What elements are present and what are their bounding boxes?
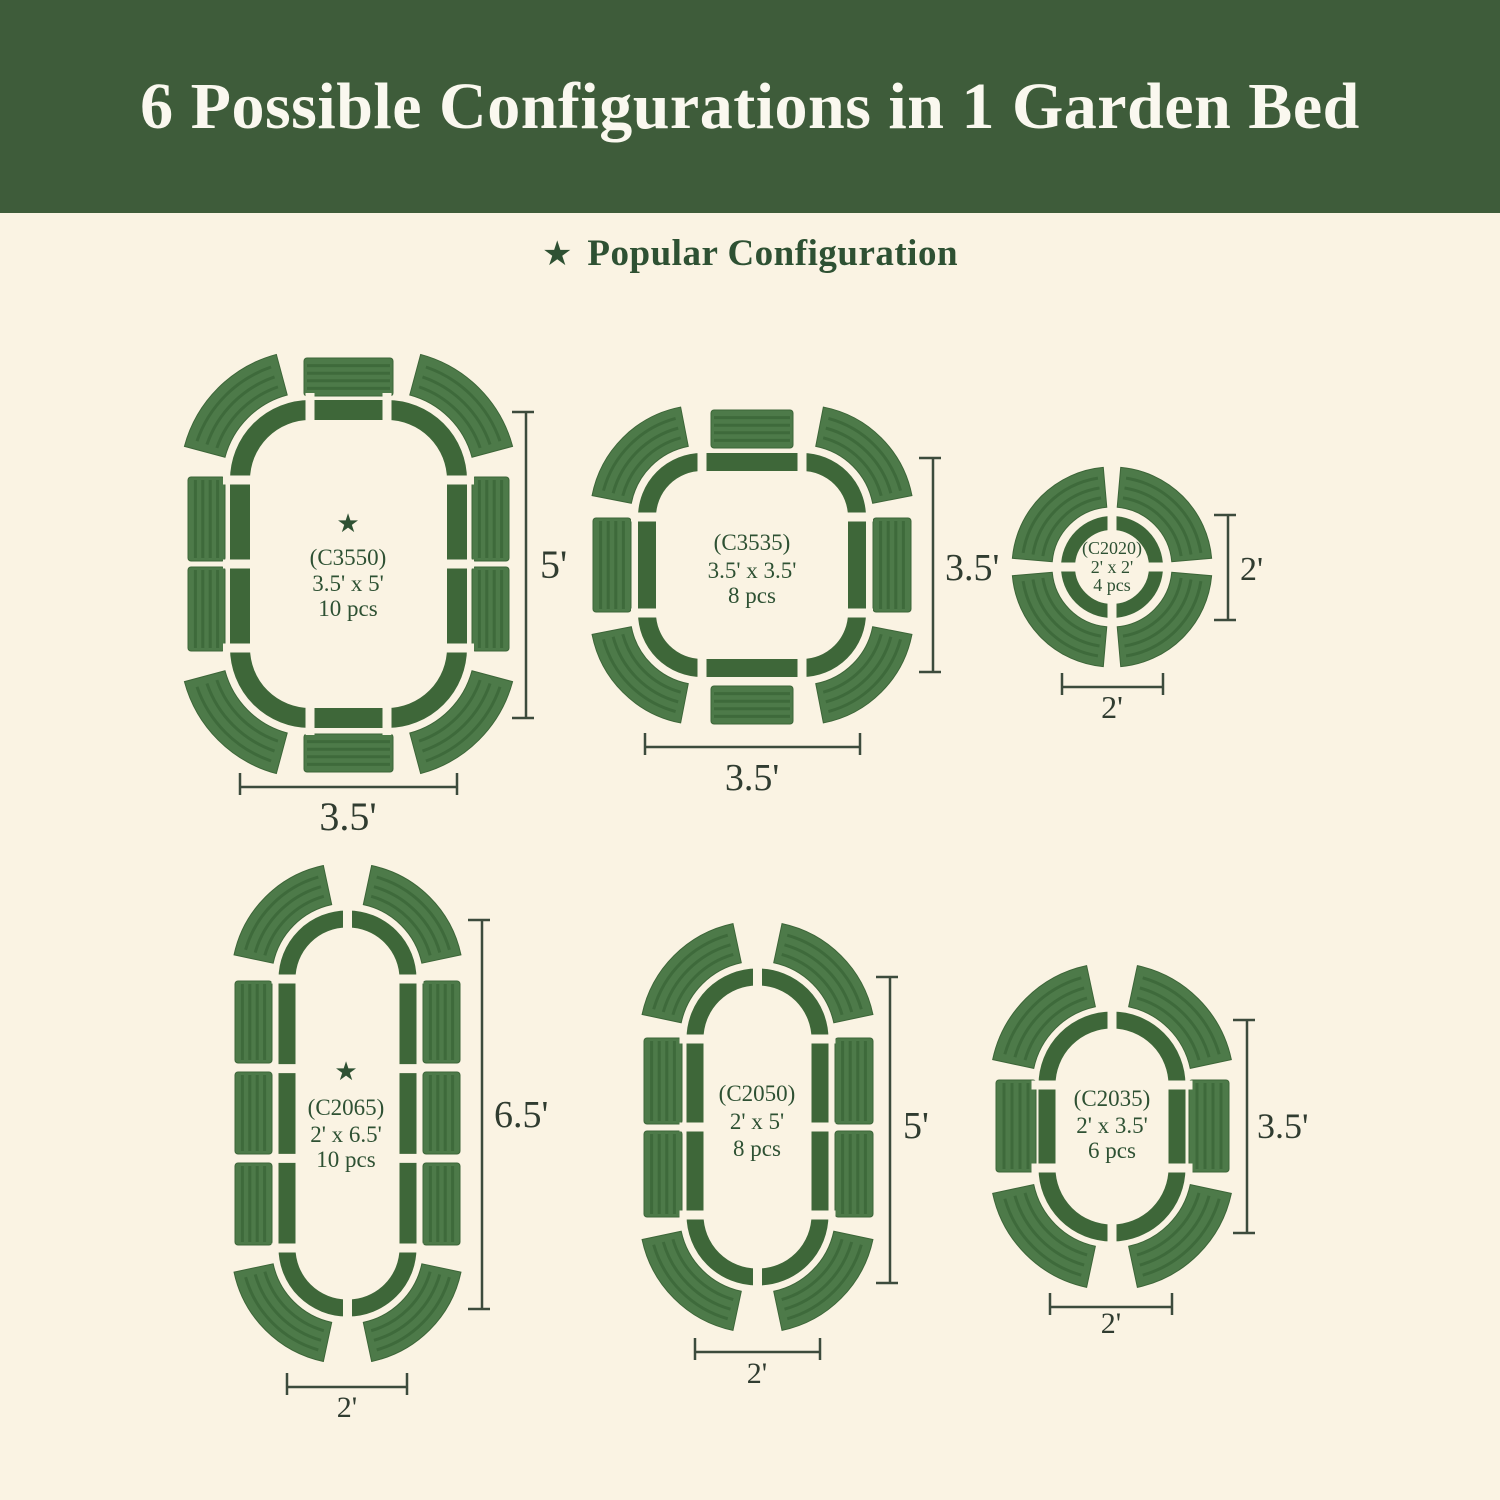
- curved-bed-panel: [993, 1185, 1096, 1288]
- curved-bed-panel: [774, 1231, 873, 1330]
- width-dim-label: 2': [1101, 689, 1123, 725]
- garden-bed-figure: 2'2'(C2020)2' x 2'4 pcs: [990, 450, 1300, 760]
- curved-bed-panel: [410, 671, 513, 774]
- curved-bed-panel: [184, 671, 287, 774]
- config-piece-count: 10 pcs: [318, 596, 377, 621]
- config-diagram-c3535: 3.5'3.5'(C3535)3.5' x 3.5'8 pcs: [590, 400, 1030, 840]
- config-size: 2' x 2': [1091, 557, 1134, 577]
- header-banner: 6 Possible Configurations in 1 Garden Be…: [0, 0, 1500, 213]
- garden-bed-figure: 5'2'(C2050)2' x 5'8 pcs: [630, 920, 960, 1420]
- config-size: 3.5' x 3.5': [708, 558, 797, 583]
- dimension-annotations: 5'3.5': [240, 412, 567, 839]
- height-dim-label: 3.5': [1257, 1106, 1309, 1146]
- straight-bed-panel: [235, 1163, 272, 1245]
- dimension-annotations: 3.5'3.5': [645, 458, 999, 799]
- straight-bed-panel: [1189, 1080, 1229, 1172]
- config-size: 2' x 5': [730, 1109, 784, 1134]
- config-size: 2' x 3.5': [1076, 1113, 1148, 1138]
- popular-star-icon: ★: [336, 509, 359, 539]
- straight-bed-panel: [188, 477, 225, 561]
- config-label: (C2050)2' x 5'8 pcs: [719, 1081, 796, 1161]
- config-piece-count: 8 pcs: [733, 1136, 781, 1161]
- config-diagram-c2035: 3.5'2'(C2035)2' x 3.5'6 pcs: [980, 960, 1340, 1380]
- straight-bed-panel: [711, 686, 793, 724]
- config-code: (C2050): [719, 1081, 796, 1106]
- curved-bed-panel: [1117, 572, 1211, 666]
- width-dim-label: 3.5': [319, 794, 376, 839]
- config-label: ★(C2065)2' x 6.5'10 pcs: [308, 1057, 385, 1172]
- straight-bed-panel: [835, 1038, 873, 1124]
- config-diagram-c3550: 5'3.5'★(C3550)3.5' x 5'10 pcs: [170, 350, 620, 850]
- curved-bed-panel: [363, 866, 461, 964]
- config-size: 3.5' x 5': [312, 571, 384, 596]
- garden-bed-figure: 3.5'2'(C2035)2' x 3.5'6 pcs: [980, 960, 1340, 1380]
- straight-bed-panel: [644, 1038, 682, 1124]
- config-size: 2' x 6.5': [310, 1122, 382, 1147]
- height-dim-label: 5': [903, 1105, 929, 1147]
- config-piece-count: 8 pcs: [728, 583, 776, 608]
- straight-bed-panel: [472, 477, 509, 561]
- straight-bed-panel: [304, 358, 393, 396]
- straight-bed-panel: [711, 410, 793, 448]
- star-icon: ★: [542, 237, 572, 271]
- curved-bed-panel: [774, 924, 873, 1023]
- config-diagram-c2065: 6.5'2'★(C2065)2' x 6.5'10 pcs: [190, 860, 590, 1460]
- popular-configuration-legend: ★ Popular Configuration: [0, 235, 1500, 272]
- config-code: (C2035): [1074, 1086, 1151, 1111]
- curved-bed-panel: [184, 354, 287, 457]
- infographic-canvas: 6 Possible Configurations in 1 Garden Be…: [0, 0, 1500, 1500]
- curved-bed-panel: [816, 627, 912, 723]
- curved-bed-panel: [642, 1231, 741, 1330]
- width-dim-label: 2': [747, 1357, 767, 1390]
- curved-bed-panel: [234, 1264, 332, 1362]
- config-code: (C3535): [714, 530, 791, 555]
- straight-bed-panel: [593, 518, 631, 612]
- curved-bed-panel: [993, 966, 1096, 1069]
- page-title: 6 Possible Configurations in 1 Garden Be…: [140, 69, 1360, 145]
- config-diagram-c2020: 2'2'(C2020)2' x 2'4 pcs: [990, 450, 1300, 760]
- config-code: (C3550): [310, 545, 387, 570]
- config-piece-count: 6 pcs: [1088, 1138, 1136, 1163]
- straight-bed-panel: [873, 518, 911, 612]
- width-dim-label: 3.5': [725, 757, 779, 799]
- height-dim-label: 5': [540, 542, 567, 587]
- straight-bed-panel: [644, 1131, 682, 1217]
- straight-bed-panel: [996, 1080, 1036, 1172]
- config-label: (C2035)2' x 3.5'6 pcs: [1074, 1086, 1151, 1163]
- garden-bed-figure: 5'3.5'★(C3550)3.5' x 5'10 pcs: [170, 350, 620, 850]
- garden-bed-figure: 3.5'3.5'(C3535)3.5' x 3.5'8 pcs: [590, 400, 1030, 840]
- straight-bed-panel: [835, 1131, 873, 1217]
- config-code: (C2020): [1082, 538, 1142, 559]
- curved-bed-panel: [592, 407, 688, 503]
- garden-bed-figure: 6.5'2'★(C2065)2' x 6.5'10 pcs: [190, 860, 590, 1460]
- curved-bed-panel: [234, 866, 332, 964]
- config-label: ★(C3550)3.5' x 5'10 pcs: [310, 509, 387, 621]
- straight-bed-panel: [235, 1072, 272, 1154]
- width-dim-label: 2': [337, 1391, 357, 1424]
- config-label: (C2020)2' x 2'4 pcs: [1082, 538, 1142, 595]
- straight-bed-panel: [423, 981, 460, 1063]
- config-code: (C2065): [308, 1095, 385, 1120]
- config-piece-count: 4 pcs: [1093, 575, 1131, 595]
- curved-bed-panel: [363, 1264, 461, 1362]
- straight-bed-panel: [472, 567, 509, 651]
- legend-label: Popular Configuration: [587, 235, 958, 272]
- curved-bed-panel: [642, 924, 741, 1023]
- straight-bed-panel: [188, 567, 225, 651]
- straight-bed-panel: [423, 1072, 460, 1154]
- popular-star-icon: ★: [334, 1057, 357, 1087]
- height-dim-label: 2': [1240, 551, 1263, 588]
- straight-bed-panel: [304, 734, 393, 772]
- curved-bed-panel: [1129, 966, 1232, 1069]
- curved-bed-panel: [410, 354, 513, 457]
- config-label: (C3535)3.5' x 3.5'8 pcs: [708, 530, 797, 608]
- config-piece-count: 10 pcs: [316, 1147, 375, 1172]
- config-diagram-c2050: 5'2'(C2050)2' x 5'8 pcs: [630, 920, 960, 1420]
- curved-bed-panel: [1129, 1185, 1232, 1288]
- straight-bed-panel: [235, 981, 272, 1063]
- height-dim-label: 6.5': [494, 1094, 548, 1136]
- curved-bed-panel: [816, 407, 912, 503]
- width-dim-label: 2': [1101, 1307, 1121, 1340]
- straight-bed-panel: [423, 1163, 460, 1245]
- curved-bed-panel: [592, 627, 688, 723]
